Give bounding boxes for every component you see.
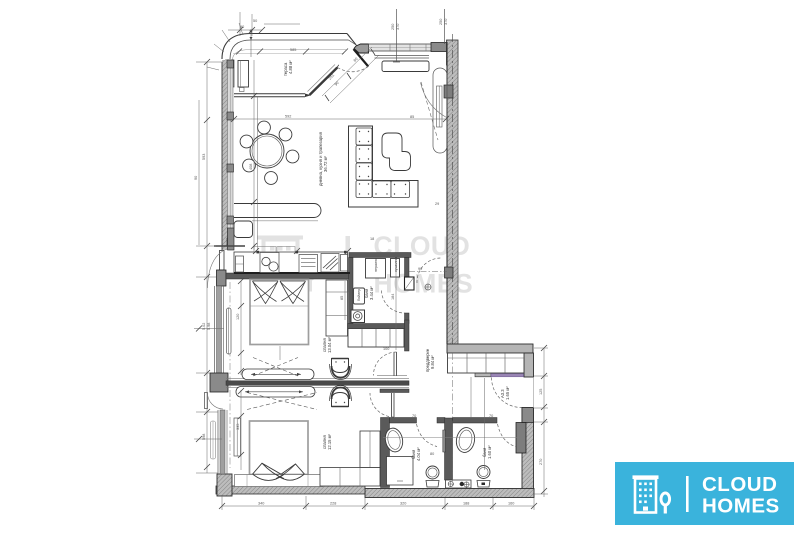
svg-text:90: 90 — [194, 176, 198, 180]
svg-text:4.88 м²: 4.88 м² — [288, 60, 293, 74]
svg-text:HOMES: HOMES — [702, 495, 780, 518]
svg-text:80: 80 — [430, 452, 434, 456]
svg-text:125: 125 — [539, 389, 543, 395]
svg-text:бойлер: бойлер — [357, 289, 361, 301]
svg-text:12.15 м²: 12.15 м² — [327, 433, 332, 450]
svg-text:1.60 м²: 1.60 м² — [487, 445, 492, 459]
svg-text:120: 120 — [236, 314, 240, 320]
svg-text:13.04 м²: 13.04 м² — [327, 336, 332, 353]
svg-text:340: 340 — [258, 502, 264, 506]
svg-text:370: 370 — [444, 19, 448, 25]
svg-text:335: 335 — [236, 424, 240, 430]
svg-text:CLOUD: CLOUD — [702, 473, 777, 496]
svg-text:85: 85 — [340, 296, 344, 300]
svg-text:50: 50 — [253, 19, 257, 23]
svg-text:593: 593 — [202, 154, 206, 160]
svg-text:пералня: пералня — [374, 258, 378, 272]
svg-text:370: 370 — [396, 24, 400, 30]
svg-text:408: 408 — [249, 164, 253, 170]
svg-text:320: 320 — [400, 502, 406, 506]
svg-text:270: 270 — [539, 459, 543, 465]
svg-text:5.98: 5.98 — [207, 323, 211, 330]
svg-text:4.04 м²: 4.04 м² — [416, 447, 421, 461]
svg-text:188: 188 — [463, 502, 469, 506]
svg-text:250: 250 — [391, 24, 395, 30]
svg-text:90: 90 — [240, 25, 244, 29]
svg-text:36.72 м²: 36.72 м² — [323, 155, 328, 172]
svg-text:9.84 м²: 9.84 м² — [430, 355, 435, 369]
svg-text:592: 592 — [285, 115, 291, 119]
svg-text:18: 18 — [370, 237, 374, 241]
svg-text:1.65 м²: 1.65 м² — [505, 386, 510, 400]
svg-text:100: 100 — [383, 347, 389, 351]
svg-text:70: 70 — [412, 414, 416, 418]
svg-text:29: 29 — [435, 202, 439, 206]
svg-text:250: 250 — [439, 19, 443, 25]
svg-text:85: 85 — [410, 115, 414, 119]
svg-text:228: 228 — [330, 502, 336, 506]
svg-text:90: 90 — [418, 267, 422, 271]
svg-text:184: 184 — [391, 294, 395, 300]
svg-text:598: 598 — [202, 434, 206, 440]
svg-text:70: 70 — [489, 414, 493, 418]
svg-text:5.02: 5.02 — [202, 323, 206, 330]
svg-text:сушилня: сушилня — [394, 257, 398, 272]
svg-text:3.44 м²: 3.44 м² — [369, 286, 374, 300]
svg-text:160: 160 — [508, 502, 514, 506]
svg-text:585: 585 — [290, 48, 296, 52]
